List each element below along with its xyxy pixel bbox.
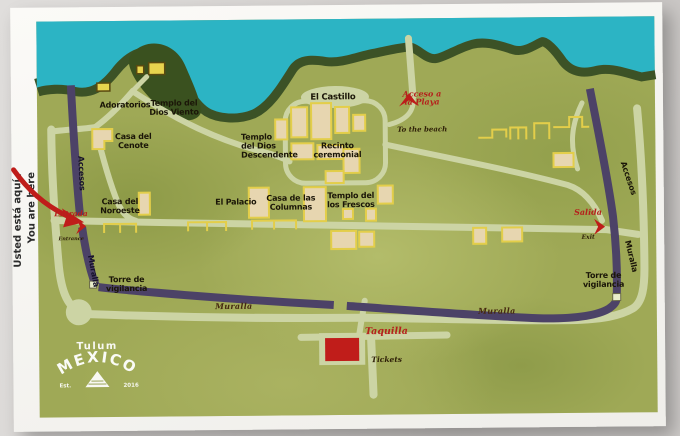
label-muralla-bottom-left: Muralla xyxy=(215,301,253,311)
playa-sublabel: To the beach xyxy=(397,125,447,133)
you-are-here-note: Usted está aquí / You are here xyxy=(11,138,39,302)
label-torre-vigilancia-left: Torre de vigilancia xyxy=(106,276,147,294)
entrada-sublabel: Entrance xyxy=(54,237,88,243)
label-casa-del-noroeste: Casa del Noroeste xyxy=(100,198,140,216)
logo-year-text: 2016 xyxy=(123,383,139,389)
label-el-castillo: El Castillo xyxy=(310,93,355,103)
label-casa-del-cenote: Casa del Cenote xyxy=(115,133,152,151)
logo-est-text: Est. xyxy=(59,383,71,389)
label-torre-vigilancia-right: Torre de vigilancia xyxy=(583,272,624,290)
salida-label: Salida xyxy=(574,208,602,217)
label-accesos-right: Accesos xyxy=(618,161,637,197)
poi-salida: Salida Exit xyxy=(574,189,602,261)
label-casa-de-las-columnas: Casa de las Columnas xyxy=(266,194,315,212)
entrada-label: Entrada xyxy=(54,210,88,218)
taquilla-label: Taquilla xyxy=(365,327,408,337)
you-are-here-es: Usted está aquí / xyxy=(12,172,24,268)
poi-entrada: Entrada Entrance xyxy=(54,191,88,262)
label-el-palacio: El Palacio xyxy=(215,198,256,207)
playa-label: Acceso a la Playa xyxy=(397,89,447,106)
label-templo-dios-descendente: Templo del Dios Descendente xyxy=(241,133,298,160)
photo-background: Usted está aquí / You are here xyxy=(0,0,680,436)
poi-acceso-playa: Acceso a la Playa To the beach xyxy=(397,70,448,152)
map-sign: Usted está aquí / You are here xyxy=(10,2,666,432)
label-templo-dios-viento: Templo del Dios Viento xyxy=(149,99,199,117)
poi-taquilla: Taquilla Tickets xyxy=(365,308,409,384)
label-recinto-ceremonial: Recinto ceremonial xyxy=(313,142,361,160)
label-muralla-right: Muralla xyxy=(622,240,638,274)
label-accesos-left: Accesos xyxy=(75,156,85,191)
map-area: Adoratorios Templo del Dios Viento Casa … xyxy=(36,16,657,417)
label-adoratorios: Adoratorios xyxy=(100,101,151,110)
taquilla-sublabel: Tickets xyxy=(365,356,408,365)
tulum-logo: Tulum MEXICO Est. 2016 xyxy=(53,337,141,392)
logo-pyramid-icon xyxy=(85,371,109,387)
label-muralla-bottom-right: Muralla xyxy=(478,305,516,315)
label-templo-de-los-frescos: Templo del los Frescos xyxy=(327,192,375,210)
salida-sublabel: Exit xyxy=(574,235,602,242)
